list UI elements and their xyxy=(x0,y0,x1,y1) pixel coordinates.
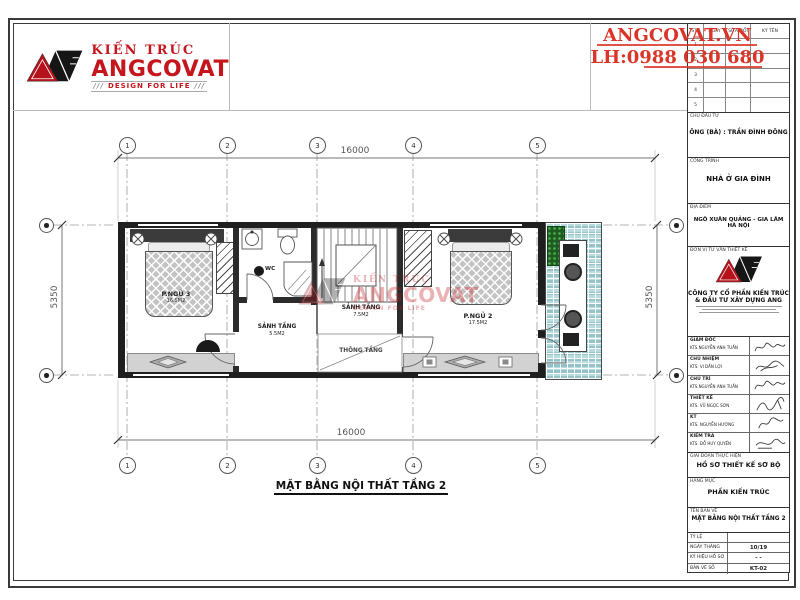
fine-print-bar xyxy=(699,312,779,314)
wall-segment xyxy=(239,297,247,303)
stage-label: GIAI ĐOẠN THỰC HIỆN xyxy=(688,453,789,459)
category-label: HẠNG MỤC xyxy=(688,478,789,484)
slash-decor: /// xyxy=(93,83,104,90)
wall-segment xyxy=(538,222,545,305)
signature-row: CHỦ NHIỆMKTS. VI DẦN LỢI xyxy=(688,356,789,375)
grid-bubble-top-1: 1 xyxy=(119,137,136,154)
window-line xyxy=(138,224,218,226)
owner-section: CHỦ ĐẦU TƯ ÔNG (BÀ) : TRẦN ĐÌNH ĐÔNG xyxy=(688,113,789,158)
revision-row-num: 4 xyxy=(688,83,704,98)
bed-blanket xyxy=(450,251,512,305)
signature-row: CHỦ TRÌKTS.NGUYỄN ANH TUẤN xyxy=(688,376,789,395)
room-label-void: THÔNG TẦNG xyxy=(330,348,392,355)
window-line xyxy=(430,224,522,226)
signature-scribble xyxy=(753,339,787,354)
wall-segment xyxy=(233,228,239,332)
title-block: STT NGÀY SỬA ĐỔI KÝ TÊN 1 2 3 4 5 CHỦ ĐẦ… xyxy=(687,23,790,573)
wall-segment xyxy=(397,228,403,337)
bed-headboard xyxy=(130,229,224,242)
location-line2: HÀ NỘI xyxy=(688,223,789,229)
window-sill xyxy=(127,353,235,373)
grid-bubble-right-b xyxy=(669,368,684,383)
signatures-table: GIÁM ĐỐCKTS.NGUYỄN ANH TUẤN CHỦ NHIỆMKTS… xyxy=(688,337,789,453)
contact-block: ANGCOVAT.VN LH:0988 030 680 xyxy=(585,25,770,69)
revision-row-num: 5 xyxy=(688,98,704,113)
grid-bubble-bottom-5: 5 xyxy=(529,457,546,474)
company-line2: & ĐẦU TƯ XÂY DỰNG ANG xyxy=(688,297,789,304)
wall-segment xyxy=(233,366,239,372)
company-line1: CÔNG TY CỔ PHẦN KIẾN TRÚC xyxy=(688,290,789,297)
wardrobe xyxy=(404,230,432,287)
header-cell-divider xyxy=(229,23,230,110)
project-name: NHÀ Ở GIA ĐÌNH xyxy=(688,175,789,183)
wall-segment xyxy=(538,363,545,378)
wall-segment xyxy=(538,330,545,338)
plan-title: MẶT BẰNG NỘI THẤT TẦNG 2 xyxy=(261,480,461,492)
logo-kien-truc: KIẾN TRÚC xyxy=(91,44,229,58)
signature-row: GIÁM ĐỐCKTS.NGUYỄN ANH TUẤN xyxy=(688,337,789,356)
meta-row: TỶ LỆ xyxy=(688,533,789,543)
consultant-label: ĐƠN VỊ TƯ VẤN THIẾT KẾ xyxy=(688,247,789,253)
window-line xyxy=(418,374,530,376)
wall-segment xyxy=(273,297,317,303)
wall-segment xyxy=(397,367,403,372)
stage-value: HỒ SƠ THIẾT KẾ SƠ BỘ xyxy=(688,461,789,469)
dimension-bottom: 16000 xyxy=(316,428,386,438)
company-logo-icon xyxy=(24,39,85,97)
grid-bubble-top-4: 4 xyxy=(405,137,422,154)
drawing-sheet: KIẾN TRÚC ANGCOVAT ///DESIGN FOR LIFE///… xyxy=(0,0,800,600)
bed-headboard xyxy=(448,229,512,242)
grid-bubble-top-5: 5 xyxy=(529,137,546,154)
red-underline xyxy=(597,44,757,46)
grid-bubble-bottom-3: 3 xyxy=(309,457,326,474)
category-value: PHẦN KIẾN TRÚC xyxy=(688,488,789,496)
owner-name: ÔNG (BÀ) : TRẦN ĐÌNH ĐÔNG xyxy=(688,129,789,136)
dimension-right: 5350 xyxy=(645,277,655,317)
room-label-bedroom3: P.NGỦ 316.5M2 xyxy=(150,290,202,304)
room-label-wc: WC xyxy=(265,266,275,272)
logo-name: ANGCOVAT xyxy=(91,58,229,81)
meta-row: KÝ HIỆU HỒ SƠ- - xyxy=(688,553,789,563)
signature-row: KIỂM TRAKTS. ĐỖ HUY QUYỀN xyxy=(688,433,789,452)
red-underline xyxy=(644,66,762,68)
room-label-hall: SẢNH TẦNG5.5M2 xyxy=(248,324,306,337)
wall-segment xyxy=(311,228,317,305)
logo-tagline: ///DESIGN FOR LIFE/// xyxy=(91,81,207,92)
room-label-bedroom2: P.NGỦ 217.5M2 xyxy=(452,312,504,326)
dimension-top: 16000 xyxy=(320,146,390,156)
meta-row: NGÀY THÁNG10/19 xyxy=(688,543,789,553)
counter-appliance xyxy=(563,333,579,346)
consultant-logo-icon xyxy=(713,254,765,288)
grid-bubble-right-a xyxy=(669,218,684,233)
meta-table: TỶ LỆ NGÀY THÁNG10/19 KÝ HIỆU HỒ SƠ- - B… xyxy=(688,533,789,574)
fine-print-bar xyxy=(702,309,776,311)
window-sill xyxy=(403,353,539,373)
project-label: CÔNG TRÌNH xyxy=(688,158,789,164)
revision-row-num: 3 xyxy=(688,69,704,84)
grid-bubble-left-a xyxy=(39,218,54,233)
grid-bubble-bottom-1: 1 xyxy=(119,457,136,474)
wall-segment xyxy=(118,222,125,378)
company-logo: KIẾN TRÚC ANGCOVAT ///DESIGN FOR LIFE/// xyxy=(24,26,229,110)
project-section: CÔNG TRÌNH NHÀ Ở GIA ĐÌNH xyxy=(688,158,789,204)
meta-row: BẢN VẼ SỐKT-02 xyxy=(688,564,789,574)
category-section: HẠNG MỤC PHẦN KIẾN TRÚC xyxy=(688,478,789,508)
grid-bubble-top-2: 2 xyxy=(219,137,236,154)
consultant-section: ĐƠN VỊ TƯ VẤN THIẾT KẾ CÔNG TY CỔ PHẦN K… xyxy=(688,247,789,337)
room-label-stair-hall: SẢNH TẦNG7.5M2 xyxy=(332,305,390,318)
header-band-divider xyxy=(13,110,687,111)
drawing-name-label: TÊN BẢN VẼ xyxy=(688,508,789,514)
bed-blanket xyxy=(145,251,213,317)
dimension-left: 5350 xyxy=(50,277,60,317)
window-line xyxy=(133,374,229,376)
fine-print-bar xyxy=(696,306,782,308)
stage-section: GIAI ĐOẠN THỰC HIỆN HỒ SƠ THIẾT KẾ SƠ BỘ xyxy=(688,453,789,478)
signature-scribble xyxy=(753,358,787,373)
counter-appliance xyxy=(563,244,579,257)
grid-bubble-left-b xyxy=(39,368,54,383)
signature-scribble xyxy=(753,377,787,392)
grid-bubble-bottom-2: 2 xyxy=(219,457,236,474)
owner-label: CHỦ ĐẦU TƯ xyxy=(688,113,789,119)
drawing-name-value: MẶT BẰNG NỘI THẤT TẦNG 2 xyxy=(688,516,789,522)
signature-scribble xyxy=(753,436,787,451)
logo-tagline-text: DESIGN FOR LIFE xyxy=(108,83,190,90)
drawing-name-section: TÊN BẢN VẼ MẶT BẰNG NỘI THẤT TẦNG 2 xyxy=(688,508,789,533)
signature-row: KTKTS. NGUYỄN HƯƠNG xyxy=(688,414,789,433)
signature-scribble xyxy=(753,397,787,412)
grid-bubble-top-3: 3 xyxy=(309,137,326,154)
location-label: ĐỊA ĐIỂM xyxy=(688,204,789,210)
signature-row: THIẾT KẾKTS. VŨ NGỌC SƠN xyxy=(688,395,789,414)
sink-basin xyxy=(564,310,582,328)
location-section: ĐỊA ĐIỂM NGÔ XUÂN QUẢNG - GIA LÂM HÀ NỘI xyxy=(688,204,789,247)
signature-scribble xyxy=(753,416,787,431)
slash-decor: /// xyxy=(195,83,206,90)
sink-basin xyxy=(564,263,582,281)
grid-bubble-bottom-4: 4 xyxy=(405,457,422,474)
